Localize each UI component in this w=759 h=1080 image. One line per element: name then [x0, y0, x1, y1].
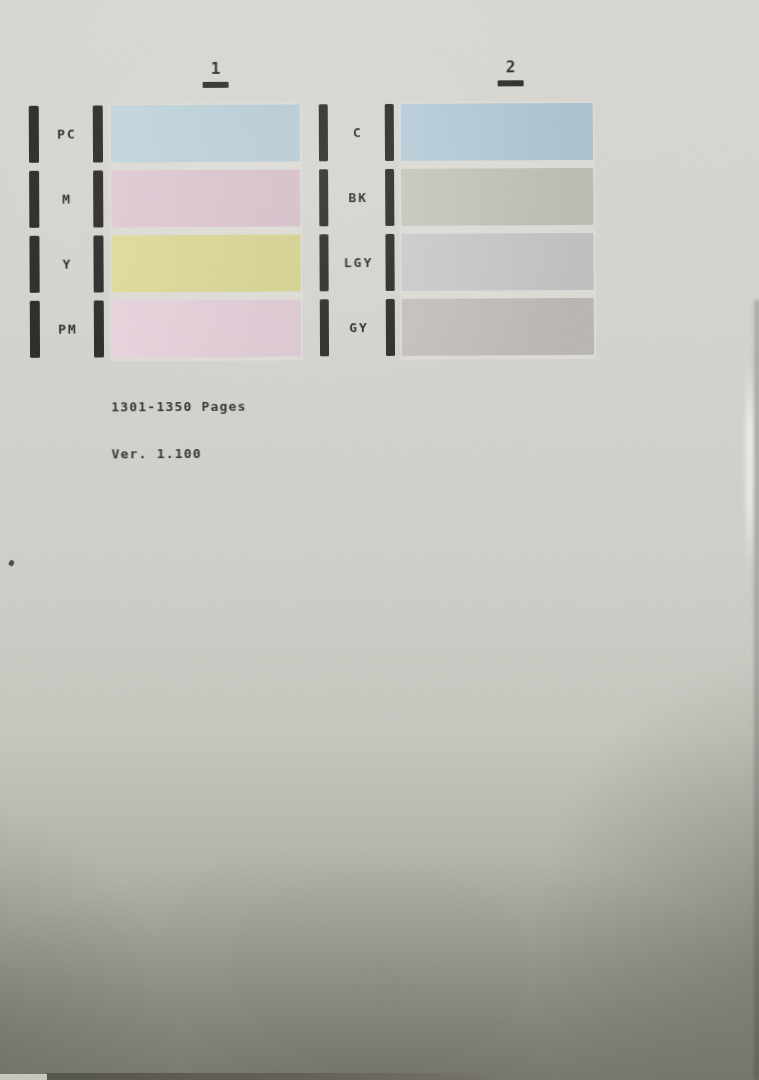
- version-text: Ver. 1.100: [112, 445, 247, 461]
- ink-label-m: M: [42, 171, 90, 228]
- ink-label-lgy: LGY: [331, 234, 383, 291]
- ink-label-bk: BK: [331, 169, 383, 226]
- color-swatch-pc: [111, 104, 300, 162]
- tick-mark: [94, 300, 104, 357]
- tick-mark: [93, 105, 103, 162]
- color-swatch-gy: [402, 298, 594, 356]
- printed-nozzle-check-chart: 1 2 PC M Y PM: [0, 0, 759, 1080]
- tick-mark: [385, 234, 394, 291]
- color-swatch-m: [111, 169, 300, 227]
- tick-mark: [320, 299, 329, 356]
- page-counter-text: 1301-1350 Pages: [111, 399, 246, 415]
- ink-label-pc: PC: [42, 106, 90, 163]
- tick-mark: [385, 104, 394, 161]
- column-2-number: 2: [497, 58, 523, 76]
- column-1-underline: [203, 82, 229, 88]
- color-swatch-bk: [401, 168, 593, 226]
- color-swatch-y: [111, 234, 300, 292]
- tick-mark: [30, 301, 40, 358]
- color-swatch-c: [401, 103, 593, 161]
- color-swatch-pm: [112, 299, 301, 357]
- column-2-header: 2: [497, 58, 523, 86]
- right-edge-shadow: [752, 300, 759, 1080]
- tick-mark: [29, 236, 39, 293]
- ink-label-pm: PM: [43, 301, 91, 358]
- footer-info: 1301-1350 Pages Ver. 1.100: [111, 368, 247, 493]
- ink-label-c: C: [331, 104, 383, 161]
- tick-mark: [386, 299, 395, 356]
- tick-mark: [29, 171, 39, 228]
- tick-mark: [319, 169, 328, 226]
- photo-of-printed-test-page: 1 2 PC M Y PM: [0, 0, 759, 1080]
- tick-mark: [319, 104, 328, 161]
- tick-mark: [93, 235, 103, 292]
- ink-label-gy: GY: [332, 299, 384, 356]
- tick-mark: [385, 169, 394, 226]
- tick-mark: [319, 234, 328, 291]
- color-swatch-lgy: [401, 233, 593, 291]
- ink-label-y: Y: [42, 236, 90, 293]
- column-1-number: 1: [202, 60, 228, 78]
- tick-mark: [29, 106, 39, 163]
- bottom-paper-edge: [0, 1074, 47, 1080]
- column-2-underline: [498, 80, 524, 86]
- tick-mark: [93, 170, 103, 227]
- column-1-header: 1: [202, 60, 228, 88]
- bottom-surface-shadow: [46, 1073, 498, 1080]
